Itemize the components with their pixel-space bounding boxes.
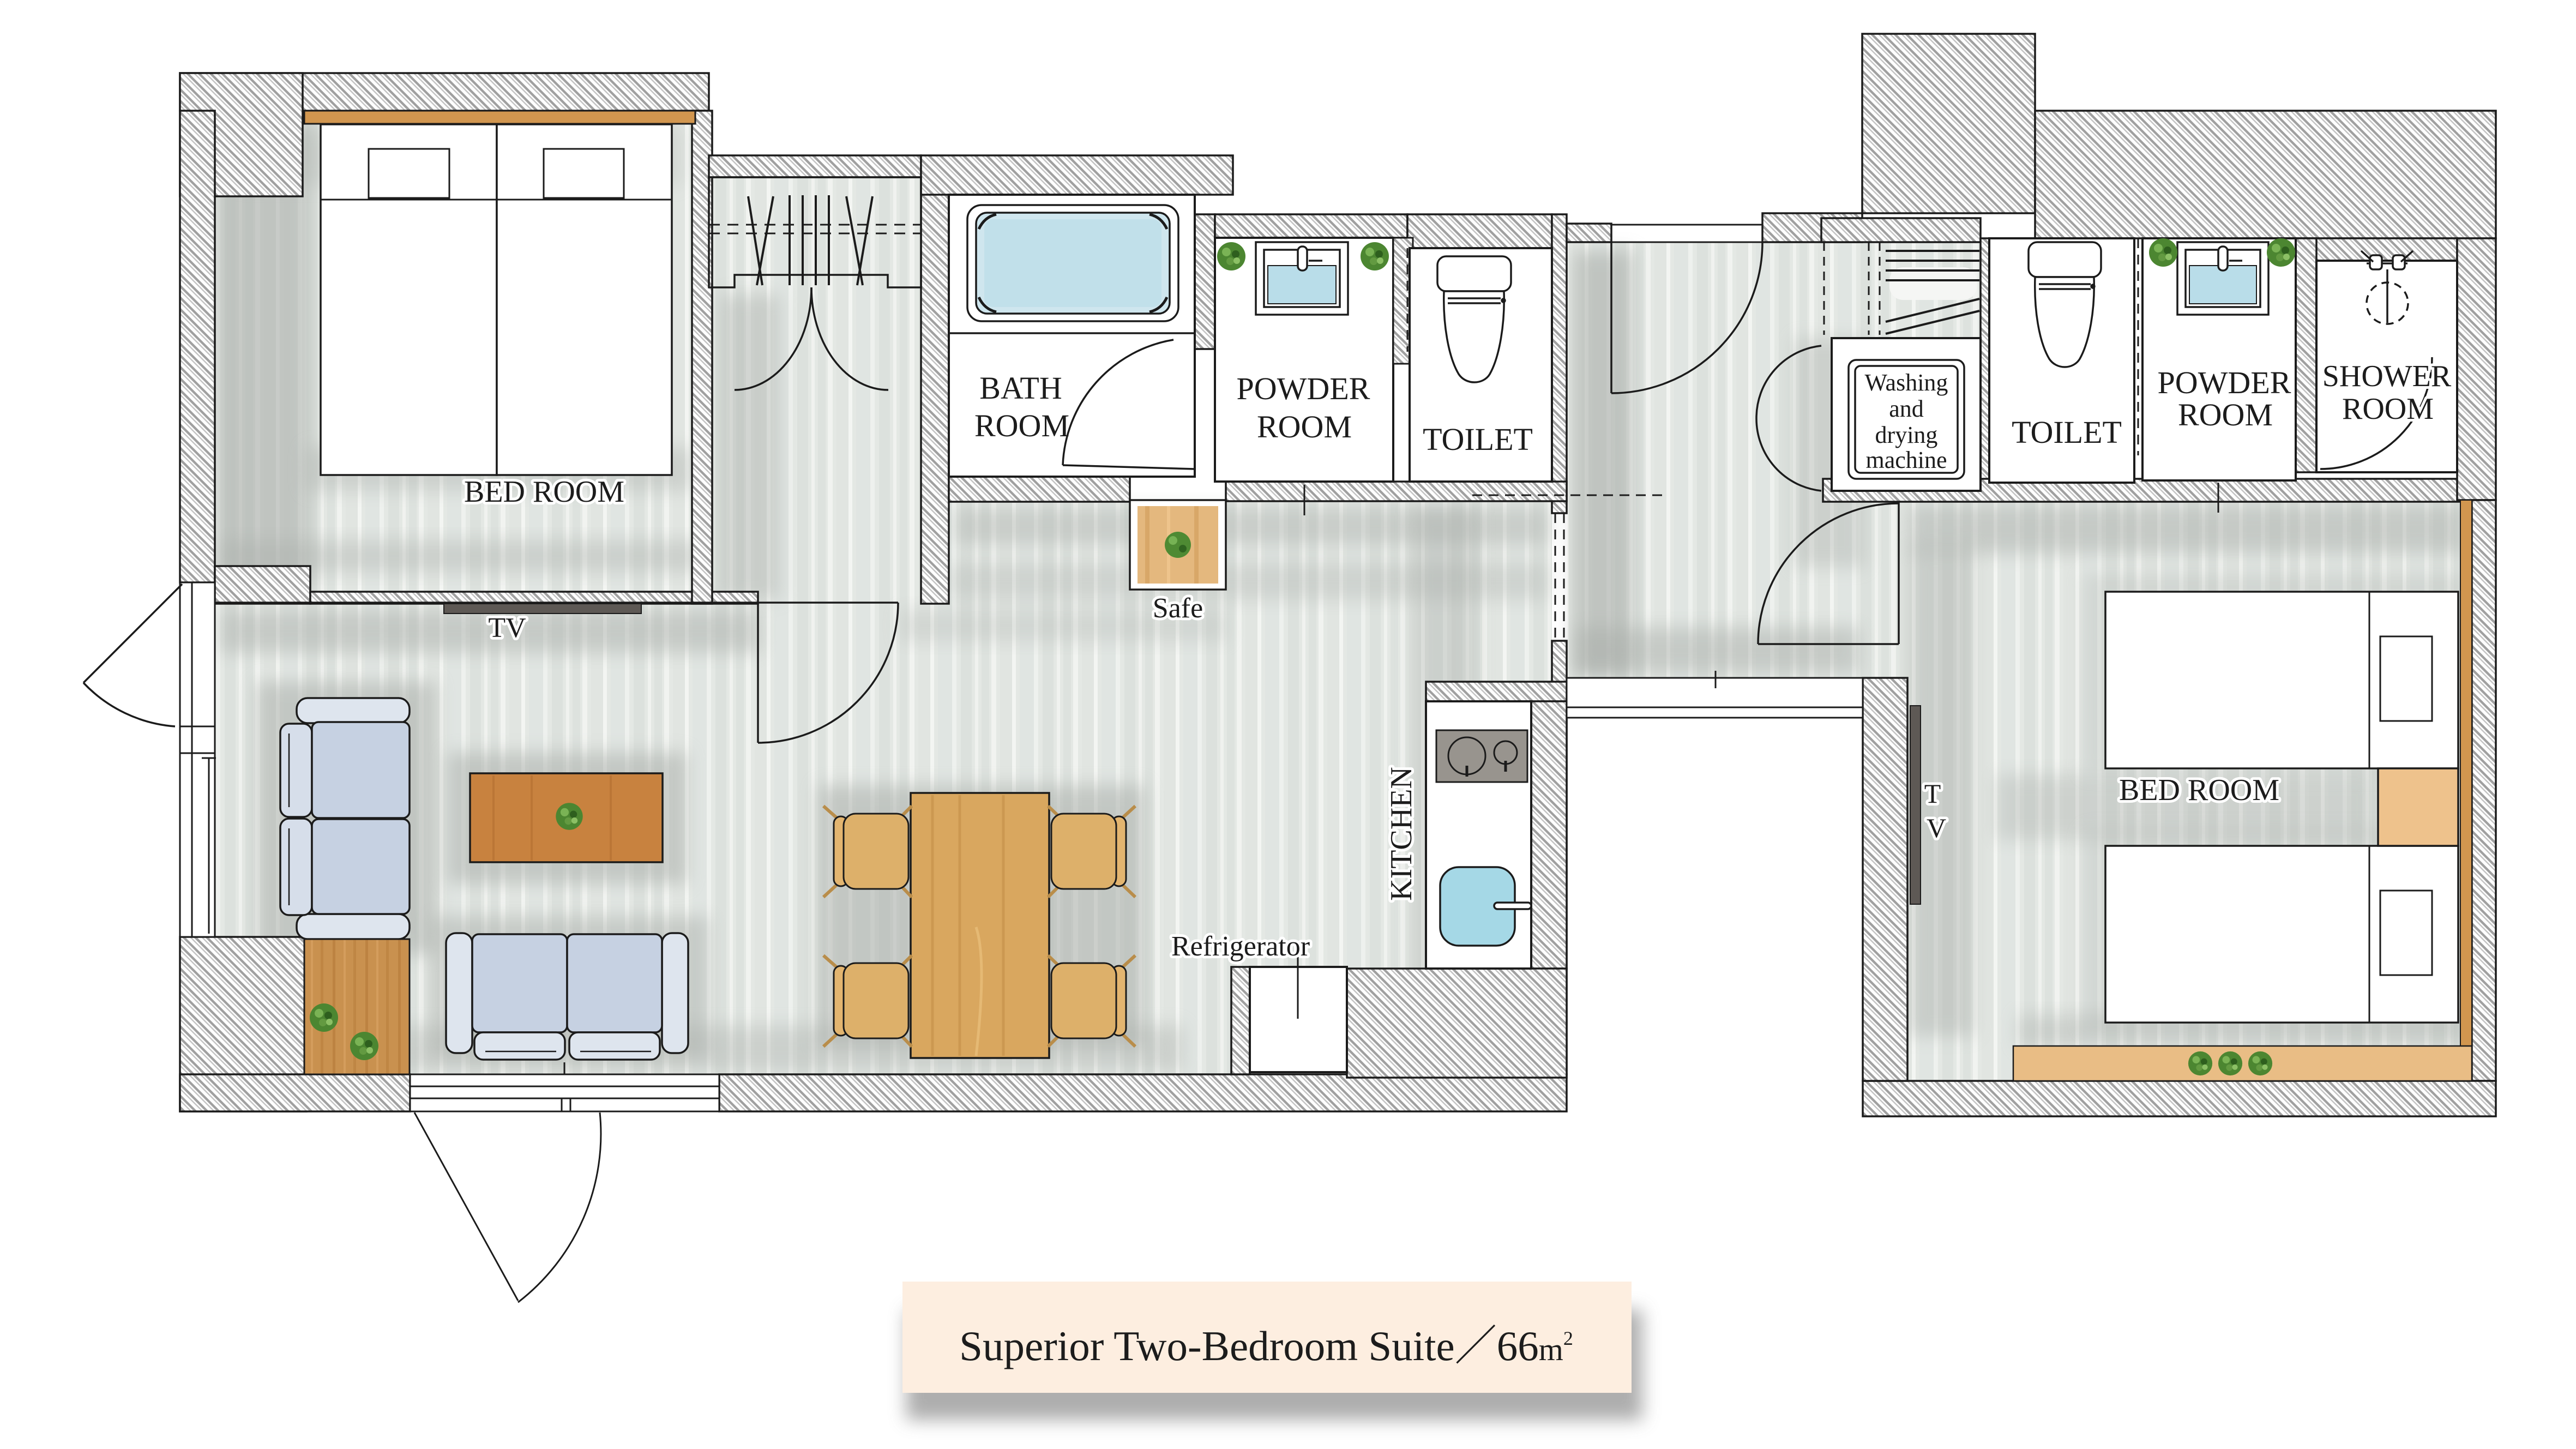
svg-text:Washing: Washing bbox=[1865, 369, 1948, 396]
svg-text:BED ROOM: BED ROOM bbox=[2119, 773, 2279, 807]
svg-text:TOILET: TOILET bbox=[1423, 422, 1533, 457]
svg-text:Refrigerator: Refrigerator bbox=[1171, 931, 1310, 962]
svg-text:and: and bbox=[1889, 395, 1924, 422]
svg-text:POWDER: POWDER bbox=[2158, 365, 2291, 400]
svg-text:ROOM: ROOM bbox=[974, 408, 1069, 443]
svg-text:KITCHEN: KITCHEN bbox=[1385, 767, 1418, 901]
svg-text:TOILET: TOILET bbox=[2012, 414, 2122, 450]
svg-text:drying: drying bbox=[1875, 422, 1938, 448]
svg-text:SHOWER: SHOWER bbox=[2322, 359, 2452, 393]
svg-text:V: V bbox=[1927, 813, 1946, 843]
svg-text:Safe: Safe bbox=[1153, 593, 1203, 624]
svg-text:ROOM: ROOM bbox=[2342, 392, 2434, 426]
svg-text:TV: TV bbox=[488, 612, 526, 644]
svg-text:machine: machine bbox=[1865, 447, 1947, 473]
svg-text:BED ROOM: BED ROOM bbox=[464, 475, 624, 509]
svg-text:T: T bbox=[1924, 778, 1941, 809]
svg-text:ROOM: ROOM bbox=[2178, 397, 2273, 432]
svg-text:POWDER: POWDER bbox=[1237, 371, 1370, 406]
svg-text:Superior Two-Bedroom Suite／66m: Superior Two-Bedroom Suite／66m2 bbox=[959, 1322, 1573, 1369]
svg-text:BATH: BATH bbox=[979, 370, 1062, 406]
svg-text:ROOM: ROOM bbox=[1257, 409, 1352, 444]
